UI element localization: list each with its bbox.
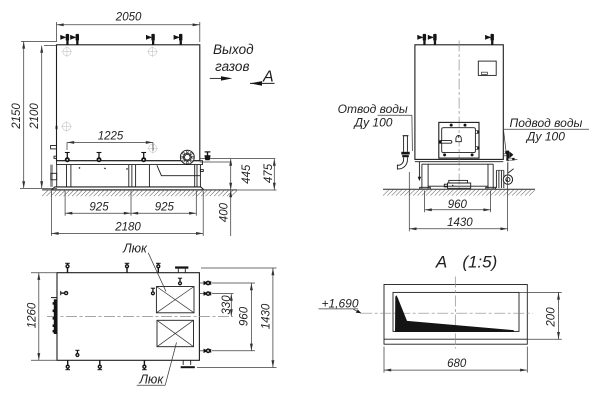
svg-text:А: А (435, 253, 447, 272)
svg-text:330: 330 (221, 295, 233, 315)
svg-text:475: 475 (263, 163, 275, 183)
svg-text:2180: 2180 (114, 221, 141, 233)
svg-text:2100: 2100 (29, 103, 41, 130)
svg-text:680: 680 (447, 358, 467, 370)
svg-text:Выход: Выход (213, 42, 254, 57)
svg-text:445: 445 (241, 164, 253, 184)
svg-text:газов: газов (215, 59, 249, 74)
svg-text:Люк: Люк (122, 241, 148, 255)
svg-text:1430: 1430 (260, 303, 272, 329)
svg-text:+1,690: +1,690 (321, 296, 358, 310)
svg-text:(1:5): (1:5) (462, 253, 497, 272)
svg-text:Ду 100: Ду 100 (525, 130, 565, 144)
svg-text:925: 925 (155, 201, 175, 213)
svg-text:Отвод воды: Отвод воды (338, 102, 408, 116)
svg-text:200: 200 (546, 307, 558, 328)
svg-text:1225: 1225 (98, 131, 124, 143)
svg-text:960: 960 (239, 306, 251, 326)
svg-text:2050: 2050 (115, 11, 142, 23)
svg-text:925: 925 (89, 201, 109, 213)
svg-text:2150: 2150 (11, 103, 23, 130)
svg-text:1430: 1430 (447, 217, 473, 229)
svg-text:Ду 100: Ду 100 (353, 116, 393, 130)
svg-text:960: 960 (448, 199, 468, 211)
svg-text:Люк: Люк (138, 373, 164, 387)
svg-text:Подвод воды: Подвод воды (510, 116, 583, 130)
svg-text:400: 400 (218, 202, 230, 222)
svg-text:А: А (262, 68, 274, 85)
svg-text:1260: 1260 (27, 302, 39, 328)
